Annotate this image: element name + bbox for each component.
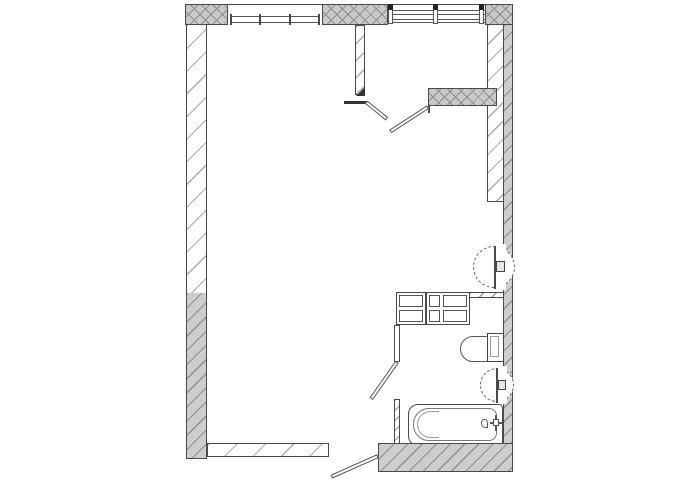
- right-wall-inner-band: [487, 25, 503, 202]
- window-left-mullion-4: [318, 14, 320, 25]
- window-right-post-cap-3: [479, 4, 484, 10]
- bottom-wall-right: [378, 443, 513, 472]
- cabinet-cell: [429, 310, 440, 322]
- window-left-mullion-1: [230, 14, 232, 25]
- window-right-post-cap-2: [433, 4, 438, 10]
- toilet-bowl: [460, 336, 489, 362]
- window-right-post-cap-1: [388, 4, 393, 10]
- bathtub: [408, 404, 503, 446]
- window-right: [388, 4, 485, 25]
- toilet-cistern: [487, 333, 504, 362]
- counter-wall-link: [470, 292, 503, 298]
- bathtub-head-arc: [417, 411, 439, 438]
- bath-partition-upper: [394, 325, 400, 362]
- window-left-mullion-3: [289, 14, 291, 25]
- window-left-frame: [230, 16, 320, 23]
- left-wall-lower: [186, 293, 207, 459]
- floor-plan-canvas: [0, 0, 700, 484]
- bath-partition-lower: [394, 399, 400, 445]
- hall-partition-wall: [355, 25, 365, 95]
- top-wall-segment-right-corner: [485, 4, 513, 25]
- window-left-mullion-2: [259, 14, 261, 25]
- hall-door-leaf-left: [365, 100, 389, 120]
- window-left: [228, 4, 322, 25]
- cabinet-cell: [429, 295, 440, 307]
- upper-basin-tap: [496, 261, 505, 272]
- cabinet-cell: [399, 295, 423, 307]
- cabinet-divider: [425, 293, 427, 324]
- bottom-wall-left: [207, 443, 329, 457]
- lower-basin-tap: [498, 380, 506, 390]
- bathtub-valve-body: [493, 419, 499, 426]
- hall-door-leaf-right: [389, 105, 429, 133]
- hall-door-hinge-wedge: [356, 87, 365, 96]
- cabinet-cell: [399, 310, 423, 322]
- hall-wall-stub: [428, 88, 497, 106]
- bathroom-door-leaf: [370, 361, 399, 400]
- cabinet-cell: [443, 295, 467, 307]
- kitchen-cabinet-block: [396, 292, 470, 325]
- top-wall-segment-middle: [322, 4, 388, 25]
- bathtub-spout: [481, 419, 488, 428]
- cabinet-cell: [443, 310, 467, 322]
- top-wall-segment-left: [185, 4, 228, 25]
- bottom-door-leaf: [331, 454, 379, 478]
- left-wall-upper: [186, 25, 207, 293]
- toilet-cistern-inner: [490, 336, 499, 357]
